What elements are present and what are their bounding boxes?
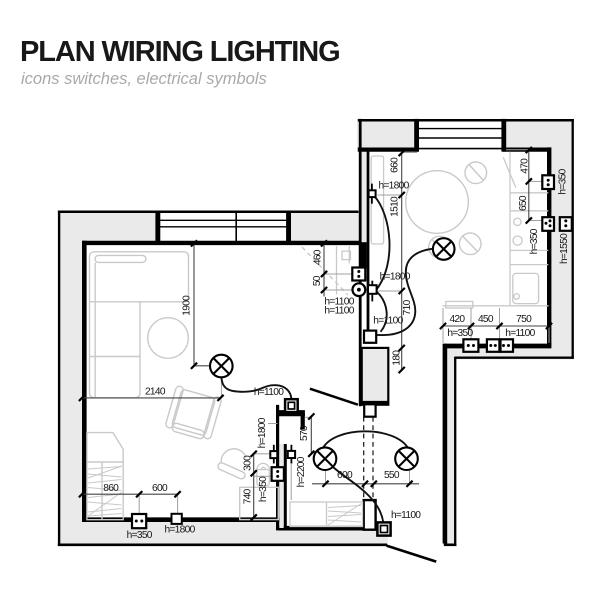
svg-text:h=2200: h=2200 (296, 456, 307, 487)
svg-text:750: 750 (516, 314, 532, 325)
svg-text:2140: 2140 (145, 387, 166, 398)
svg-text:h=350: h=350 (258, 476, 269, 502)
svg-text:420: 420 (449, 314, 465, 325)
svg-text:470: 470 (519, 158, 530, 174)
svg-text:50: 50 (312, 275, 323, 286)
svg-text:1510: 1510 (390, 196, 401, 217)
svg-text:1900: 1900 (181, 295, 192, 316)
svg-text:h=350: h=350 (447, 328, 473, 339)
svg-text:h=350: h=350 (127, 530, 153, 541)
svg-text:h=1800: h=1800 (378, 181, 409, 192)
svg-text:h=1800: h=1800 (164, 524, 195, 535)
svg-text:570: 570 (299, 425, 310, 441)
svg-text:h=1100: h=1100 (391, 510, 421, 521)
svg-text:h=1800: h=1800 (380, 272, 411, 283)
svg-text:600: 600 (152, 483, 168, 494)
svg-text:h=1100: h=1100 (373, 316, 403, 327)
svg-text:550: 550 (384, 470, 400, 481)
svg-text:PLAN WIRING LIGHTING: PLAN WIRING LIGHTING (20, 36, 340, 68)
svg-text:h=1800: h=1800 (257, 417, 268, 448)
svg-text:460: 460 (312, 249, 323, 265)
svg-text:icons switches, electrical sym: icons switches, electrical symbols (21, 70, 267, 88)
svg-text:180: 180 (392, 350, 403, 366)
svg-text:300: 300 (242, 455, 253, 471)
svg-text:h=1100: h=1100 (505, 328, 535, 339)
svg-text:h=1100: h=1100 (254, 387, 284, 398)
svg-text:450: 450 (478, 314, 494, 325)
svg-text:860: 860 (103, 483, 119, 494)
svg-text:650: 650 (518, 195, 529, 211)
svg-text:h=350: h=350 (529, 228, 540, 254)
svg-text:h=350: h=350 (557, 168, 568, 194)
svg-text:660: 660 (390, 157, 401, 173)
svg-text:h=1100: h=1100 (324, 305, 354, 316)
svg-text:710: 710 (402, 299, 413, 315)
svg-text:740: 740 (242, 488, 253, 504)
svg-text:h=1550: h=1550 (559, 233, 570, 264)
svg-text:600: 600 (337, 470, 353, 481)
